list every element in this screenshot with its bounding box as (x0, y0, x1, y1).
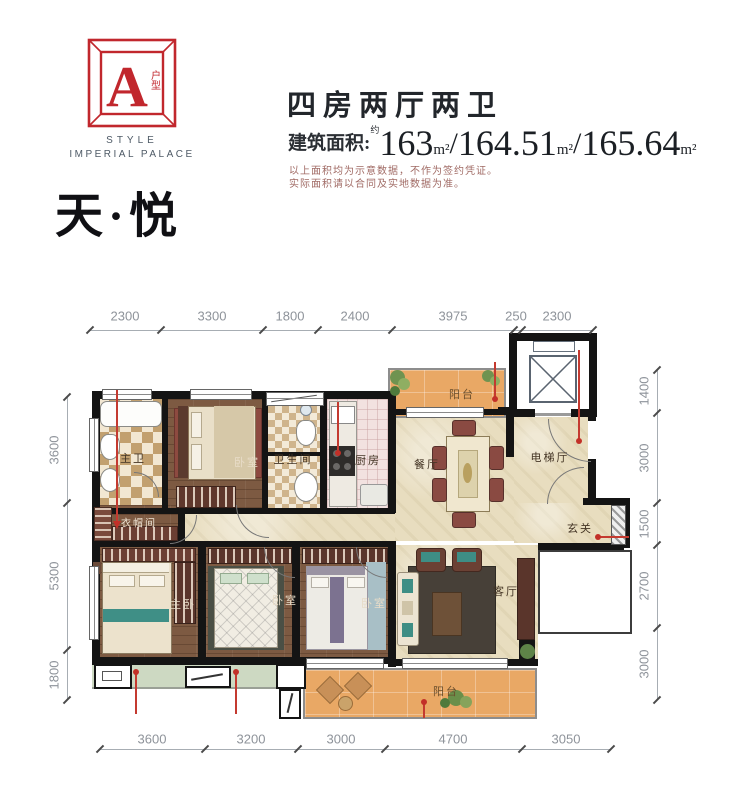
section-marker-line (287, 693, 294, 713)
bedroom-right-runner (330, 577, 344, 643)
floorplan-page: A 户型 STYLE IMPERIAL PALACE 天·悦 四房两厅两卫 建筑… (0, 0, 750, 796)
wall-bathroom-kitchen (320, 399, 327, 508)
label-elevator-hall: 电梯厅 (531, 449, 570, 465)
dim-bottom-3: 3000 (327, 732, 356, 747)
master-bed-pillow-2 (139, 575, 165, 587)
bedroom-right-pillow-1 (311, 577, 329, 588)
area-value-2: 164.51 (458, 123, 557, 163)
section-line-1-arrow (113, 521, 121, 529)
section-line-6 (135, 672, 137, 714)
bedroom-right-bed (306, 566, 368, 650)
brand-lines: STYLE IMPERIAL PALACE (62, 134, 202, 162)
dim-top-7: 2300 (543, 309, 572, 324)
sink-bathroom (294, 472, 318, 502)
balcony-table (338, 696, 353, 711)
section-line-7 (235, 672, 237, 714)
brand-style-word: STYLE (62, 134, 202, 148)
label-cloakroom: 衣帽间 (121, 515, 157, 530)
entry-hatched-column (611, 505, 626, 545)
section-line-2 (337, 402, 339, 452)
elevator-shaft-wall-top (509, 333, 597, 341)
dim-right-4: 2700 (637, 572, 652, 601)
section-symbol-box (185, 666, 231, 688)
dim-bottom-5: 3050 (552, 732, 581, 747)
area-unit-2: m² (557, 142, 573, 158)
logo-tag: 户型 (149, 69, 161, 90)
bedroom-top-pillow-1 (191, 412, 202, 438)
section-line-3 (494, 362, 496, 398)
master-bed-canopy (103, 563, 169, 573)
disclaimer-line-2: 实际面积请以合同及实地数据为准。 (289, 175, 465, 190)
bedroom-top-pillow-2 (191, 444, 202, 470)
elevator-shaft-wall-bottom-right (571, 409, 597, 417)
master-bed-runner (103, 609, 169, 622)
dining-chair-left-2 (432, 478, 447, 502)
dim-left-3: 1800 (47, 661, 62, 690)
section-line-5-dot (595, 534, 601, 540)
section-line-3-dot (492, 396, 498, 402)
label-balcony-top: 阳台 (449, 386, 475, 402)
slider-living-balcony (402, 658, 508, 669)
label-master-bath: 主卫 (120, 450, 146, 466)
tick-bottom-6 (607, 745, 615, 753)
wall-masterbath-bedroom (162, 399, 168, 508)
bedroom-mid-pillow-2 (247, 573, 269, 584)
section-symbol-line (191, 673, 223, 681)
section-marker-vertical (279, 689, 301, 719)
window-bedroomright-balcony (306, 658, 384, 669)
dim-line-bottom (100, 749, 611, 750)
burner-4 (344, 463, 351, 470)
wall-right-living (388, 541, 396, 667)
master-bedroom-rack (102, 548, 196, 562)
bay-window-mid (276, 664, 306, 689)
label-bedroom-top: 卧室 (234, 454, 260, 470)
window-masterbath-top (102, 389, 152, 400)
elevator-door-line (535, 413, 571, 416)
section-line-2-dot (335, 450, 341, 456)
dim-bottom-1: 3600 (138, 732, 167, 747)
balcony-bottom-plant-2 (460, 696, 472, 708)
bedroom-top-bed-headboard (178, 406, 188, 478)
window-masterbath-left (89, 418, 99, 472)
bedroom-right-headboard (307, 567, 365, 575)
dining-centerpiece (463, 463, 472, 483)
cloakroom-rack-vertical (94, 507, 112, 541)
section-line-4 (578, 350, 580, 440)
bedroom-top-wardrobe (176, 486, 236, 508)
section-line-6-dot (133, 669, 139, 675)
area-row: 建筑面积:约163m²/164.51m²/165.64m² (288, 122, 697, 164)
bay-window-master-sill (102, 671, 122, 681)
wall-corridor-bedrooms (92, 541, 392, 547)
label-bathroom: 卫生间 (274, 451, 313, 467)
dim-top-1: 2300 (111, 309, 140, 324)
dining-chair-right-2 (489, 478, 504, 502)
sofa-cushion-3 (402, 623, 413, 637)
section-line-4-dot (576, 438, 582, 444)
bathtub (100, 401, 162, 427)
toilet-bathroom (296, 420, 316, 446)
label-entry: 玄关 (567, 520, 593, 536)
elevator-shaft-wall-bottom-left (509, 409, 535, 417)
label-master-bedroom: 主卧 (170, 596, 196, 612)
area-unit-3: m² (680, 142, 696, 158)
label-kitchen: 厨房 (355, 452, 381, 468)
dim-top-3: 1800 (276, 309, 305, 324)
area-value-1: 163 (379, 123, 433, 163)
balcony-top-plant-2 (398, 378, 410, 390)
bedroom-mid-pillow-1 (220, 573, 242, 584)
sofa-cushion-1 (402, 579, 413, 593)
dim-top-5: 3975 (439, 309, 468, 324)
corridor-floor (185, 513, 395, 541)
area-value-3: 165.64 (581, 123, 680, 163)
kitchen-sink (331, 406, 355, 424)
bay-window-master (94, 664, 132, 689)
dim-left-2: 5300 (47, 562, 62, 591)
sofa-cushion-2 (402, 601, 413, 615)
dining-chair-top (452, 420, 476, 436)
brand-logo: A 户型 (87, 38, 177, 128)
window-masterbedroom-left (89, 566, 99, 640)
neighbor-unit-outline (538, 550, 632, 634)
elevator-car-symbol (529, 355, 577, 403)
armchair-1-cushion (421, 552, 440, 562)
dim-bottom-2: 3200 (237, 732, 266, 747)
wall-master-mid (198, 541, 206, 663)
label-bedroom-mid: 卧室 (272, 592, 298, 608)
balcony-bottom-plant-3 (440, 698, 450, 708)
bedroom-mid-bed (214, 568, 278, 648)
tick-left-4 (63, 696, 71, 704)
elevator-counterweight (533, 341, 575, 352)
burner-3 (333, 463, 340, 470)
elevator-shaft-wall-right (589, 333, 597, 417)
burner-2 (344, 450, 351, 457)
area-approx: 约 (370, 125, 379, 135)
plan-title: 四房两厅两卫 (287, 82, 503, 124)
armchair-1 (416, 548, 446, 572)
section-line-5 (599, 536, 629, 538)
balcony-top-plant-3 (390, 386, 400, 396)
window-bedroomtop-top (190, 389, 252, 400)
slider-dining-balcony (406, 407, 484, 418)
dim-right-1: 1400 (637, 377, 652, 406)
tick-right-6 (653, 696, 661, 704)
tv-cabinet (517, 558, 535, 640)
dim-right-5: 3000 (637, 650, 652, 679)
dim-top-6: 250 (505, 309, 527, 324)
dim-bottom-4: 4700 (439, 732, 468, 747)
label-living: 客厅 (493, 583, 519, 599)
master-wardrobe (174, 562, 196, 624)
coffee-table (432, 592, 462, 636)
dim-left-1: 3600 (47, 436, 62, 465)
dining-chair-bottom (452, 512, 476, 528)
dim-right-2: 3000 (637, 444, 652, 473)
dim-line-right (657, 370, 658, 700)
dim-top-4: 2400 (341, 309, 370, 324)
kitchen-fridge (360, 484, 388, 506)
project-name: 天·悦 (55, 176, 182, 246)
kitchen-stove (329, 446, 355, 476)
section-line-8-dot (421, 699, 427, 705)
area-slash-1: / (450, 127, 458, 160)
living-plant (520, 644, 535, 659)
dim-line-top (90, 330, 593, 331)
dim-right-3: 1500 (637, 510, 652, 539)
label-dining: 餐厅 (414, 456, 440, 472)
label-balcony-bottom: 阳台 (433, 683, 459, 699)
logo-letter: A (106, 54, 148, 119)
bedroom-right-pillow-2 (347, 577, 365, 588)
master-bed-pillow-1 (109, 575, 135, 587)
high-window-bathroom (266, 392, 324, 406)
dim-line-left (67, 397, 68, 700)
label-bedroom-right: 卧室 (361, 595, 387, 611)
dining-table (446, 436, 490, 512)
elevator-shaft-wall-left (509, 333, 517, 417)
brand-name: IMPERIAL PALACE (62, 148, 202, 162)
area-label: 建筑面积: (288, 133, 370, 154)
sofa (397, 572, 419, 646)
high-window-sash-line (271, 395, 317, 402)
section-line-7-dot (233, 669, 239, 675)
section-line-1 (116, 390, 118, 522)
armchair-2 (452, 548, 482, 572)
dim-top-2: 3300 (198, 309, 227, 324)
area-unit-1: m² (433, 142, 449, 158)
dining-chair-right-1 (489, 446, 504, 470)
armchair-2-cushion (457, 552, 476, 562)
master-bed (102, 562, 172, 654)
